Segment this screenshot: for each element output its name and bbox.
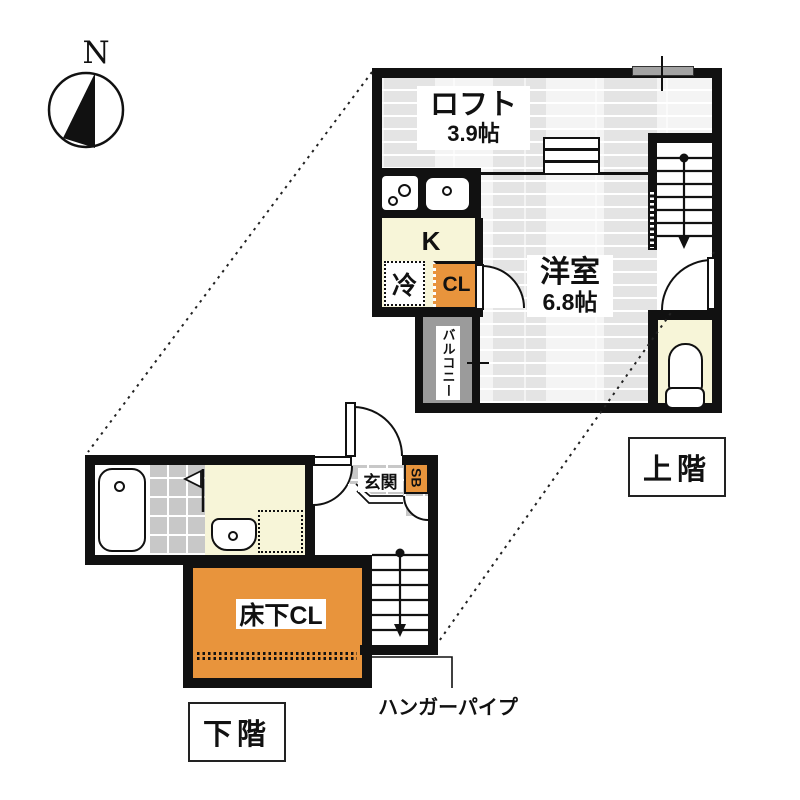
- underfloor-label: 床下CL: [239, 596, 322, 632]
- entrance-door-leaf: [345, 402, 356, 457]
- dashed-connector-left: [88, 72, 372, 452]
- lower-wall-bottom: [85, 555, 372, 565]
- sink-faucet-icon: [442, 186, 452, 196]
- loft-name: ロフト: [430, 89, 517, 121]
- compass-north-label: N: [70, 36, 122, 70]
- lower-stair-wall-bottom: [360, 645, 438, 655]
- room-label-box: 洋室 6.8帖: [527, 255, 613, 317]
- washbasin-drain-icon: [228, 531, 238, 541]
- lower-stairs-icon: [372, 549, 428, 638]
- toilet-wall-top: [648, 310, 722, 320]
- upper-stairwell: [657, 143, 712, 310]
- lower-floor-tag-text: 下階: [203, 711, 271, 753]
- bathtub-drain-icon: [114, 481, 125, 492]
- compass-icon: [49, 73, 123, 148]
- lower-floor-tag: 下階: [188, 702, 286, 762]
- underfloor-label-box: 床下CL: [236, 599, 326, 629]
- lower-wall-left: [85, 455, 95, 565]
- balcony-wall-left: [415, 315, 423, 413]
- washer-label: [258, 510, 303, 553]
- room-size: 6.8帖: [543, 289, 598, 315]
- entrance-door-icon: [353, 407, 402, 456]
- closet-label: CL: [436, 263, 477, 307]
- stove-burner-large-icon: [398, 184, 411, 197]
- washroom-hall-wall: [305, 455, 315, 565]
- stove-burner-small-icon: [388, 196, 398, 206]
- kitchen-label: K: [408, 226, 454, 256]
- kitchen-wall-right: [475, 218, 483, 266]
- hanger-pipe-label: ハンガーパイプ: [368, 693, 528, 717]
- loft-ladder-rung: [545, 160, 598, 163]
- entrance-tile-under-sb: [404, 493, 428, 518]
- toilet-bowl-icon: [668, 343, 703, 391]
- fridge-label: 冷: [384, 261, 425, 306]
- lower-wall-right: [428, 455, 438, 655]
- balcony-wall-right: [472, 317, 480, 403]
- window-top-icon: [632, 66, 694, 76]
- underfloor-dotted-line: [197, 657, 357, 660]
- stair-wall-left: [648, 133, 657, 250]
- entrance-label-box: 玄関: [358, 468, 403, 492]
- kitchen-wall-bottom: [372, 307, 483, 317]
- shoebox-label: SB: [404, 461, 429, 494]
- upper-wall-left: [372, 68, 382, 317]
- stair-wall-top: [648, 133, 712, 143]
- hall-door-icon: [313, 466, 352, 505]
- toilet-tank-icon: [665, 387, 705, 409]
- upper-floor-tag: 上階: [628, 437, 726, 497]
- bathtub-icon: [98, 468, 146, 552]
- entrance-label: 玄関: [364, 468, 398, 493]
- loft-ladder-icon: [543, 137, 600, 175]
- upper-outside-cover: [372, 317, 417, 413]
- loft-size: 3.9帖: [447, 121, 500, 147]
- loft-label-box: ロフト 3.9帖: [417, 86, 530, 150]
- balcony-label: バルコニー: [436, 326, 460, 400]
- lower-wall-top-left: [85, 455, 314, 465]
- floor-plan: N K 冷 CL バルコニー ロフト 3.9帖 洋室: [0, 0, 800, 800]
- upper-floor-tag-text: 上階: [643, 446, 711, 488]
- loft-ladder-rung: [545, 148, 598, 151]
- toilet-wall-left: [648, 320, 658, 413]
- landing-door-leaf: [707, 257, 716, 310]
- underfloor-dotted-line: [197, 652, 357, 655]
- bathroom-tile-area: [148, 465, 205, 555]
- hall-door-leaf: [313, 456, 352, 466]
- upper-wall-right: [712, 68, 722, 413]
- hanger-pipe-leader-line: [372, 657, 452, 688]
- room-name: 洋室: [540, 257, 600, 289]
